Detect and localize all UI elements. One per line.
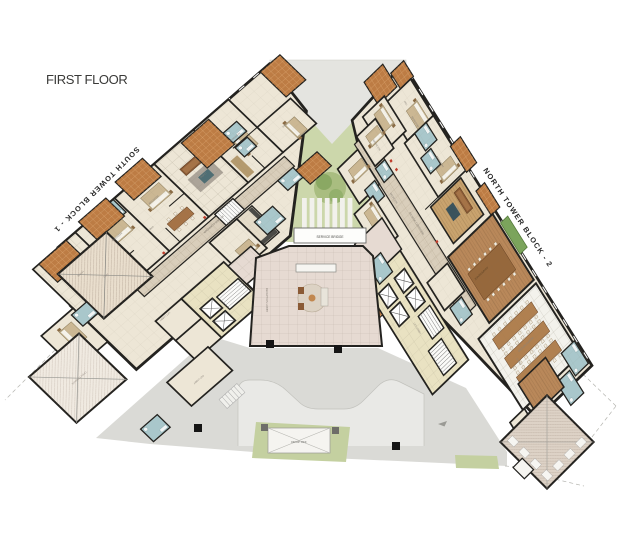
svg-text:RECEPTION LOBBY: RECEPTION LOBBY	[265, 288, 269, 313]
svg-text:FIRST FLOOR: FIRST FLOOR	[46, 72, 127, 87]
svg-text:DROP OFF: DROP OFF	[291, 440, 307, 444]
svg-text:SERVICE BRIDGE: SERVICE BRIDGE	[316, 235, 343, 239]
